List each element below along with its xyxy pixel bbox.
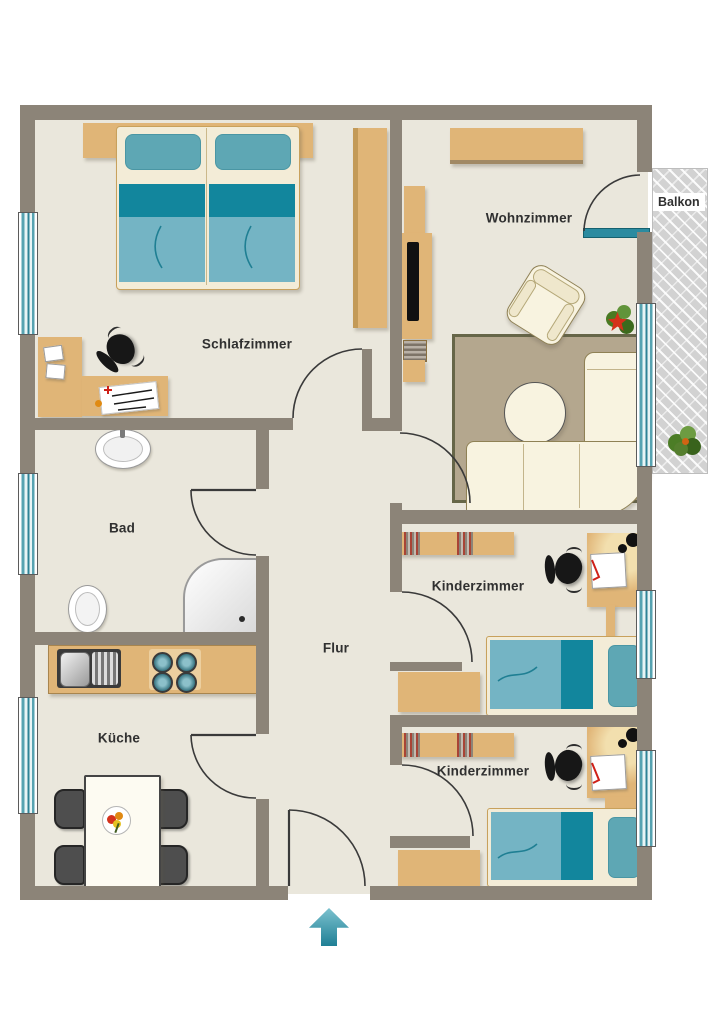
chair-armrest: [566, 778, 582, 790]
room-label-balkon: Balkon: [653, 193, 705, 211]
fruit: [115, 812, 123, 820]
office-chair: [542, 548, 584, 590]
window: [636, 750, 656, 847]
entrance-arrow-icon: [309, 908, 349, 946]
stove-burner: [152, 652, 173, 673]
door-leaf: [390, 836, 470, 848]
window: [636, 590, 656, 679]
office-chair: [542, 745, 584, 787]
sink-drainer: [92, 652, 118, 685]
stove-burner: [152, 672, 173, 693]
paper-sheet: [45, 363, 65, 380]
blanket: [119, 217, 205, 282]
wardrobe: [353, 128, 387, 328]
media-drawers: [403, 340, 427, 362]
kids-bed: [487, 808, 644, 887]
shelf-books: [457, 532, 473, 555]
paper-sheet: [590, 552, 627, 589]
chair-armrest: [566, 547, 582, 559]
room-label-kinderzimmer-2: Kinderzimmer: [437, 764, 529, 779]
stove-burner: [176, 652, 197, 673]
desk-accessory: [95, 400, 102, 407]
pillow: [215, 134, 291, 170]
shelf-books: [457, 733, 473, 757]
desk-lamp-arm: [618, 739, 627, 748]
shower-drain: [239, 616, 245, 622]
room-label-kinderzimmer-1: Kinderzimmer: [432, 579, 524, 594]
coffee-table: [504, 382, 566, 444]
sofa-cushion-line: [579, 444, 580, 508]
wall-segment: [390, 727, 402, 765]
dining-chair: [157, 845, 188, 885]
sofa-cushion-line: [523, 444, 524, 512]
chair-armrest: [566, 581, 582, 593]
paper-sheet: [590, 754, 627, 791]
window: [18, 473, 38, 575]
washbasin-bowl: [103, 436, 143, 462]
room-label-kueche: Küche: [98, 731, 140, 746]
wall-segment: [35, 418, 293, 430]
bed-half: [118, 128, 207, 285]
stove-burner: [176, 672, 197, 693]
wall-segment: [390, 715, 652, 727]
nightstand: [606, 605, 615, 637]
pillow: [125, 134, 201, 170]
door-leaf: [390, 662, 462, 671]
window: [18, 697, 38, 814]
wall-segment: [370, 886, 652, 900]
balcony-plant-icon: [668, 424, 702, 458]
tv-screen: [407, 242, 419, 321]
blanket-band: [209, 184, 295, 217]
wall-segment: [390, 510, 652, 524]
window: [18, 212, 38, 335]
shelf-books: [404, 532, 420, 555]
shelf-books: [404, 733, 420, 757]
blanket-band: [561, 640, 593, 709]
blanket-band: [119, 184, 205, 217]
room-label-bad: Bad: [109, 521, 135, 536]
shower: [183, 558, 259, 636]
blanket: [490, 640, 561, 709]
tv-lowboard-shelf: [404, 186, 425, 233]
window: [636, 303, 656, 467]
dining-chair: [157, 789, 188, 829]
toilet-bowl: [75, 592, 100, 626]
room-label-wohnzimmer: Wohnzimmer: [486, 211, 573, 226]
dresser: [398, 850, 480, 886]
chair-armrest: [566, 744, 582, 756]
wall-segment: [256, 799, 269, 886]
sink-bowl: [60, 652, 90, 687]
kitchen-sink-unit: [57, 649, 121, 688]
wall-segment: [256, 645, 269, 734]
wall-shelf: [399, 733, 514, 757]
washbasin: [95, 429, 151, 469]
wall-segment: [256, 430, 269, 489]
desk-lamp-arm: [618, 544, 627, 553]
blanket: [209, 217, 295, 282]
dining-chair: [54, 789, 85, 829]
paper-sheet: [43, 345, 64, 362]
blanket: [491, 812, 561, 880]
floor-plan: Schlafzimmer Wohnzimmer Bad Flur Küche K…: [0, 0, 724, 1024]
toilet: [68, 585, 107, 633]
wall-segment: [637, 105, 652, 172]
kids-bed: [486, 636, 644, 716]
plant-bloom: [682, 438, 689, 445]
wall-segment: [20, 105, 652, 120]
kitchen-counter: [48, 645, 260, 694]
room-label-flur: Flur: [323, 641, 349, 656]
bed-half: [208, 128, 296, 285]
wall-shelf: [399, 532, 514, 555]
tv-lowboard-base: [403, 360, 425, 382]
double-bed: [116, 126, 300, 290]
door-leaf: [362, 349, 372, 424]
wall-segment: [390, 503, 402, 592]
sideboard: [450, 128, 583, 164]
room-label-schlafzimmer: Schlafzimmer: [202, 337, 292, 352]
dresser: [398, 672, 480, 712]
dining-chair: [54, 845, 85, 885]
dining-table: [84, 775, 161, 894]
wall-segment: [256, 556, 269, 632]
fruit-bowl: [102, 806, 131, 835]
wall-segment: [20, 886, 288, 900]
wall-segment: [390, 120, 402, 430]
wall-segment: [35, 632, 269, 645]
flower-plant-icon: [604, 303, 634, 337]
corner-sofa: [466, 441, 650, 517]
blanket-band: [561, 812, 593, 880]
